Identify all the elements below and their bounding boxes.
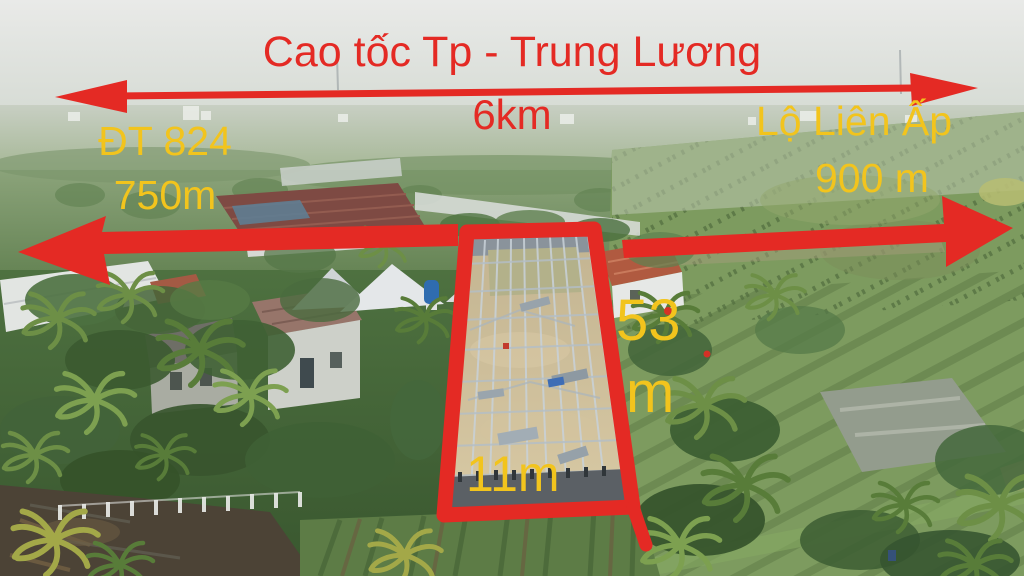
left-road-block: ĐT 824 750m xyxy=(40,114,290,222)
left-road-label: ĐT 824 xyxy=(40,114,290,168)
plot-depth-label: 53 xyxy=(616,292,681,350)
aerial-photo: Cao tốc Tp - Trung Lương 6km ĐT 824 750m… xyxy=(0,0,1024,576)
small-figure xyxy=(888,550,896,561)
left-road-distance-label: 750m xyxy=(40,168,290,222)
plot-depth-unit-label: m xyxy=(626,364,674,422)
right-road-label: Lộ Liên Ấp xyxy=(756,101,952,142)
highway-label: Cao tốc Tp - Trung Lương xyxy=(0,31,1024,74)
plot-width-label: 11m xyxy=(466,449,560,499)
right-road-distance-label: 900 m xyxy=(815,158,929,199)
red-dot-marker xyxy=(704,351,711,358)
